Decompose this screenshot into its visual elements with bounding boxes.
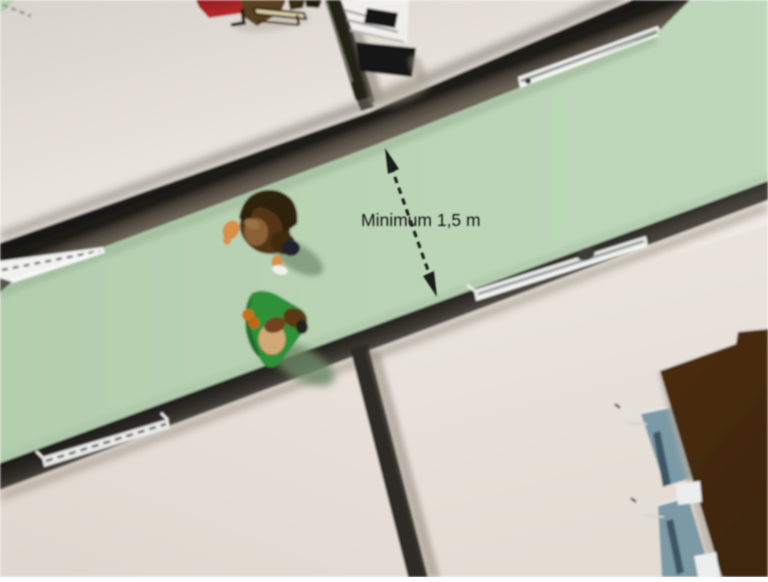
svg-text:Minimum 1,5 m: Minimum 1,5 m [361,210,481,230]
